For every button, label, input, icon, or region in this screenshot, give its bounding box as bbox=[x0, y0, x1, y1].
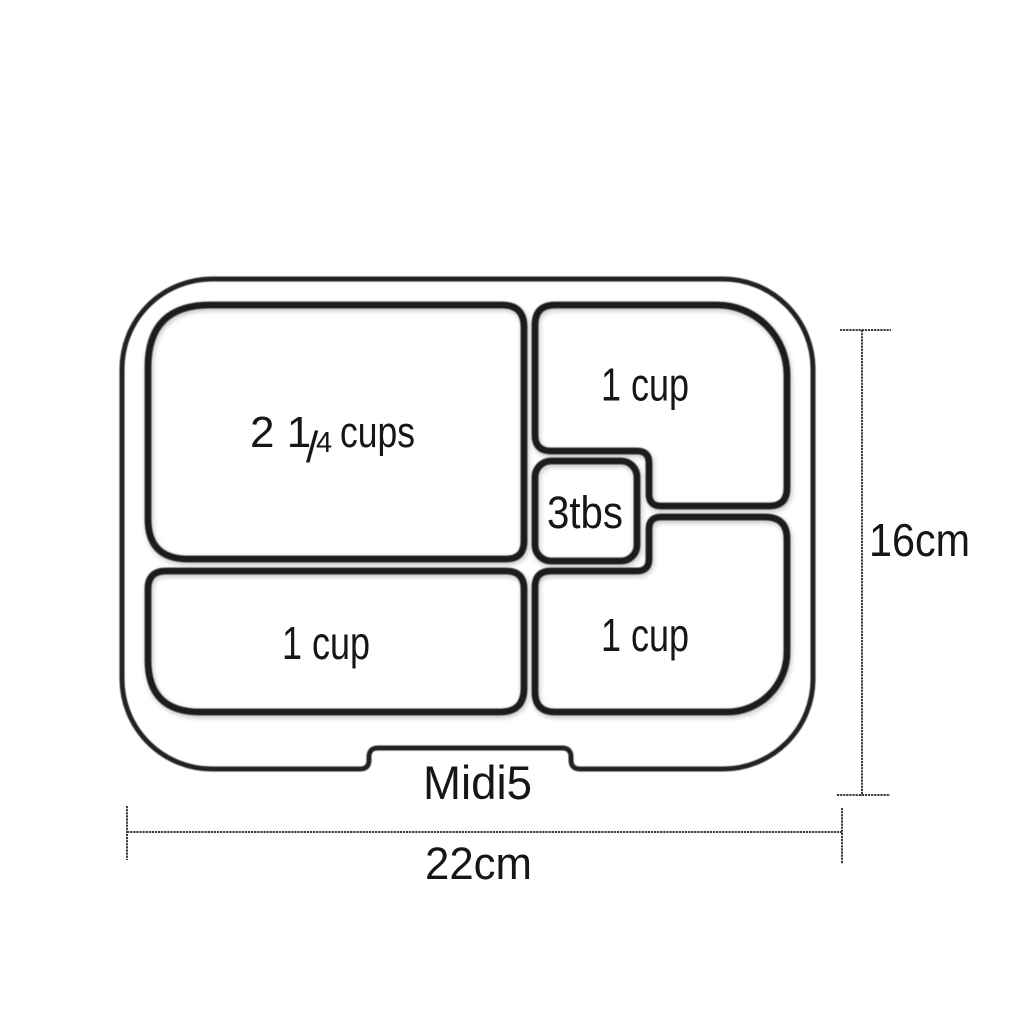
svg-text:3tbs: 3tbs bbox=[547, 487, 623, 538]
svg-text:1 cup: 1 cup bbox=[601, 359, 689, 411]
svg-text:4: 4 bbox=[316, 427, 332, 459]
svg-text:cups: cups bbox=[340, 408, 415, 457]
svg-text:16cm: 16cm bbox=[869, 514, 970, 566]
svg-text:Midi5: Midi5 bbox=[423, 756, 532, 809]
svg-text:1 cup: 1 cup bbox=[282, 617, 370, 669]
svg-text:22cm: 22cm bbox=[425, 838, 532, 889]
svg-text:1 cup: 1 cup bbox=[601, 609, 689, 661]
svg-text:2 1: 2 1 bbox=[250, 408, 311, 457]
